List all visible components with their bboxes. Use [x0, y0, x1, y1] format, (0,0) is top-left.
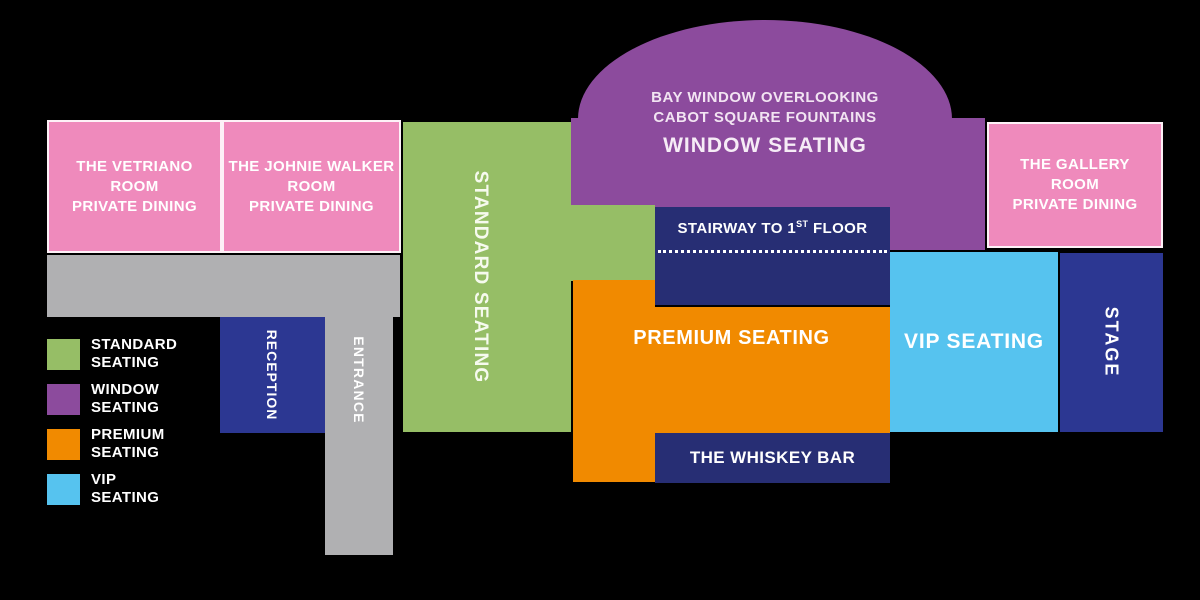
premium-seating-area	[655, 307, 890, 433]
stairway-box: STAIRWAY TO 1ST FLOOR	[655, 207, 890, 305]
window-seating-label: WINDOW SEATING	[590, 134, 940, 158]
whiskey-bar: THE WHISKEY BAR	[655, 433, 890, 483]
room-gallery-label: THE GALLERY ROOM PRIVATE DINING	[1012, 155, 1137, 215]
premium-seating-extension	[573, 280, 655, 482]
room-gallery: THE GALLERY ROOM PRIVATE DINING	[987, 122, 1163, 248]
vip-seating-area: VIP SEATING	[890, 252, 1058, 432]
room-johnie-walker-label: THE JOHNIE WALKER ROOM PRIVATE DINING	[229, 157, 395, 217]
legend-item-standard: STANDARD SEATING	[47, 336, 177, 372]
room-vetriano: THE VETRIANO ROOM PRIVATE DINING	[47, 120, 222, 253]
legend-label-premium: PREMIUM SEATING	[91, 426, 165, 462]
legend-item-window: WINDOW SEATING	[47, 381, 159, 417]
legend-item-premium: PREMIUM SEATING	[47, 426, 165, 462]
bay-window-caption: BAY WINDOW OVERLOOKING CABOT SQUARE FOUN…	[590, 88, 940, 128]
premium-seating-label: PREMIUM SEATING	[573, 327, 890, 350]
bay-window-caption-line2: CABOT SQUARE FOUNTAINS	[590, 108, 940, 128]
vip-seating-label: VIP SEATING	[904, 330, 1044, 354]
legend-swatch-standard	[47, 339, 80, 370]
room-johnie-walker: THE JOHNIE WALKER ROOM PRIVATE DINING	[222, 120, 401, 253]
legend-item-vip: VIP SEATING	[47, 471, 159, 507]
bay-window-caption-line1: BAY WINDOW OVERLOOKING	[590, 88, 940, 108]
legend-swatch-premium	[47, 429, 80, 460]
whiskey-bar-label: THE WHISKEY BAR	[690, 448, 855, 468]
stairway-dotted-line	[658, 250, 887, 253]
entrance-label: ENTRANCE	[351, 336, 367, 423]
legend-label-window: WINDOW SEATING	[91, 381, 159, 417]
reception-label: RECEPTION	[264, 330, 280, 421]
standard-seating-notch	[571, 205, 655, 281]
stairway-label: STAIRWAY TO 1ST FLOOR	[655, 207, 890, 250]
legend-swatch-window	[47, 384, 80, 415]
room-vetriano-label: THE VETRIANO ROOM PRIVATE DINING	[72, 157, 197, 217]
legend-label-vip: VIP SEATING	[91, 471, 159, 507]
stage-label: STAGE	[1101, 307, 1122, 378]
legend-label-standard: STANDARD SEATING	[91, 336, 177, 372]
stairway-superscript: ST	[796, 219, 808, 229]
venue-floor-plan: BAY WINDOW OVERLOOKING CABOT SQUARE FOUN…	[0, 0, 1200, 600]
standard-seating-label: STANDARD SEATING	[469, 171, 491, 384]
legend-swatch-vip	[47, 474, 80, 505]
